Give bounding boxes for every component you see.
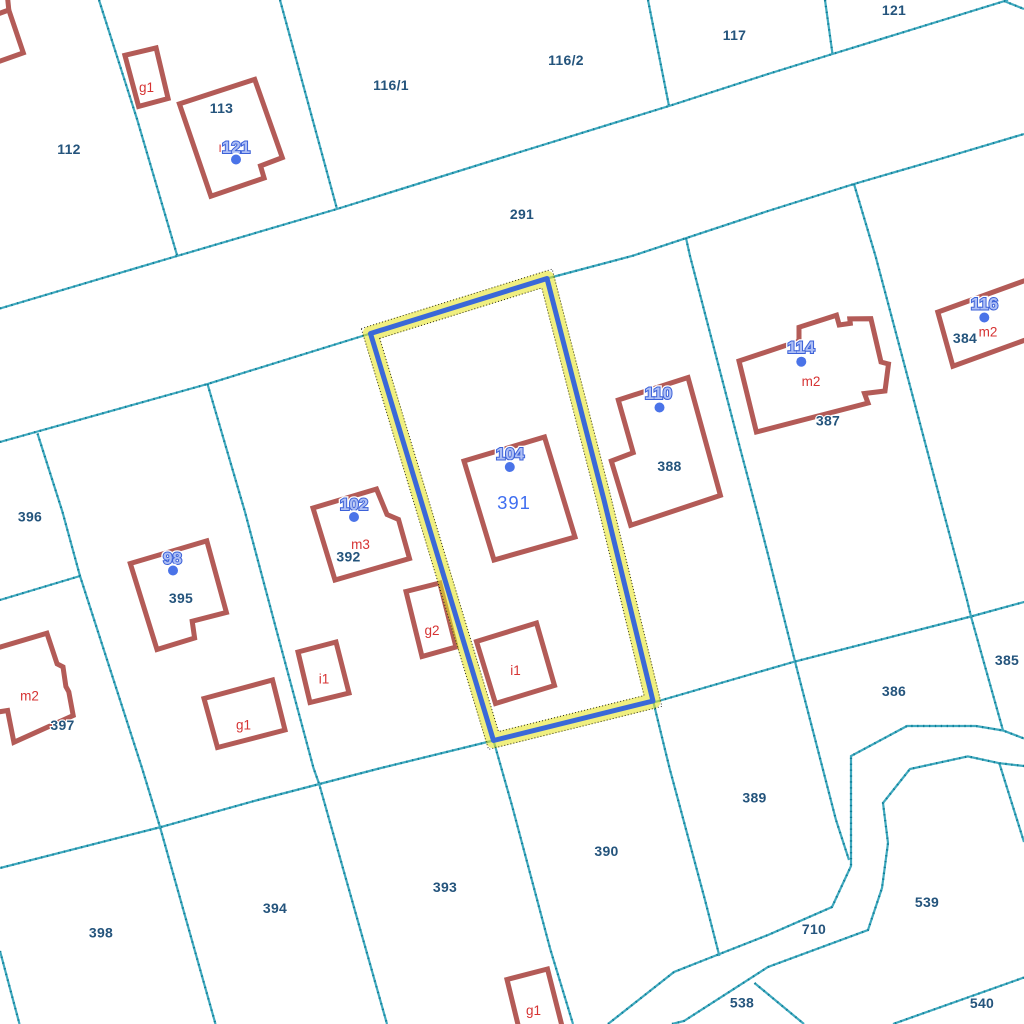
svg-text:396: 396 — [18, 508, 42, 524]
svg-text:389: 389 — [742, 789, 766, 805]
svg-text:g2: g2 — [424, 623, 439, 638]
svg-text:g1: g1 — [236, 717, 251, 732]
svg-text:540: 540 — [970, 995, 994, 1011]
svg-text:114: 114 — [787, 338, 815, 357]
svg-text:117: 117 — [723, 27, 747, 43]
svg-text:386: 386 — [882, 683, 906, 699]
svg-text:m2: m2 — [979, 324, 998, 339]
svg-text:393: 393 — [433, 879, 457, 895]
svg-text:538: 538 — [730, 994, 754, 1010]
svg-text:116/1: 116/1 — [373, 77, 409, 93]
svg-text:395: 395 — [169, 590, 193, 606]
svg-text:i1: i1 — [319, 671, 330, 686]
svg-text:g1: g1 — [526, 1003, 541, 1018]
svg-text:116/2: 116/2 — [548, 52, 584, 68]
svg-text:113: 113 — [210, 100, 234, 116]
svg-text:390: 390 — [594, 843, 618, 859]
svg-text:539: 539 — [915, 894, 939, 910]
svg-text:391: 391 — [497, 492, 531, 513]
svg-text:394: 394 — [263, 900, 287, 916]
svg-text:384: 384 — [953, 330, 977, 346]
svg-text:710: 710 — [802, 921, 826, 937]
svg-text:112: 112 — [57, 141, 81, 157]
svg-text:385: 385 — [995, 652, 1019, 668]
svg-text:291: 291 — [510, 206, 534, 222]
svg-text:g1: g1 — [139, 80, 154, 95]
svg-text:397: 397 — [50, 717, 74, 733]
svg-text:121: 121 — [882, 2, 906, 18]
svg-text:m3: m3 — [351, 537, 370, 552]
svg-text:387: 387 — [816, 412, 840, 428]
svg-text:m2: m2 — [802, 374, 821, 389]
svg-text:m2: m2 — [20, 688, 39, 703]
svg-text:388: 388 — [657, 458, 681, 474]
svg-text:i1: i1 — [510, 663, 521, 678]
svg-text:116: 116 — [971, 294, 998, 313]
svg-text:110: 110 — [645, 384, 672, 403]
svg-text:398: 398 — [89, 924, 113, 940]
